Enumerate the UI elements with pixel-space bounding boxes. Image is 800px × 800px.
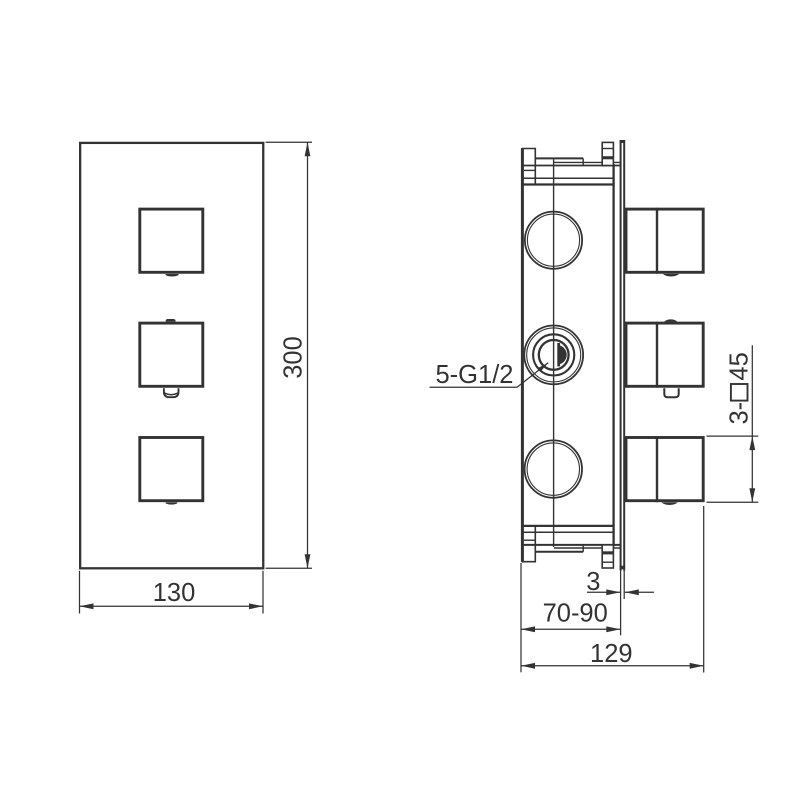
svg-text:45: 45 (726, 352, 754, 380)
svg-text:300: 300 (280, 336, 308, 379)
svg-text:130: 130 (153, 579, 196, 607)
svg-text:3-: 3- (726, 402, 754, 425)
svg-text:5-G1/2: 5-G1/2 (436, 361, 514, 389)
svg-text:70-90: 70-90 (543, 599, 608, 627)
svg-text:129: 129 (590, 640, 633, 668)
svg-text:3: 3 (586, 568, 600, 596)
